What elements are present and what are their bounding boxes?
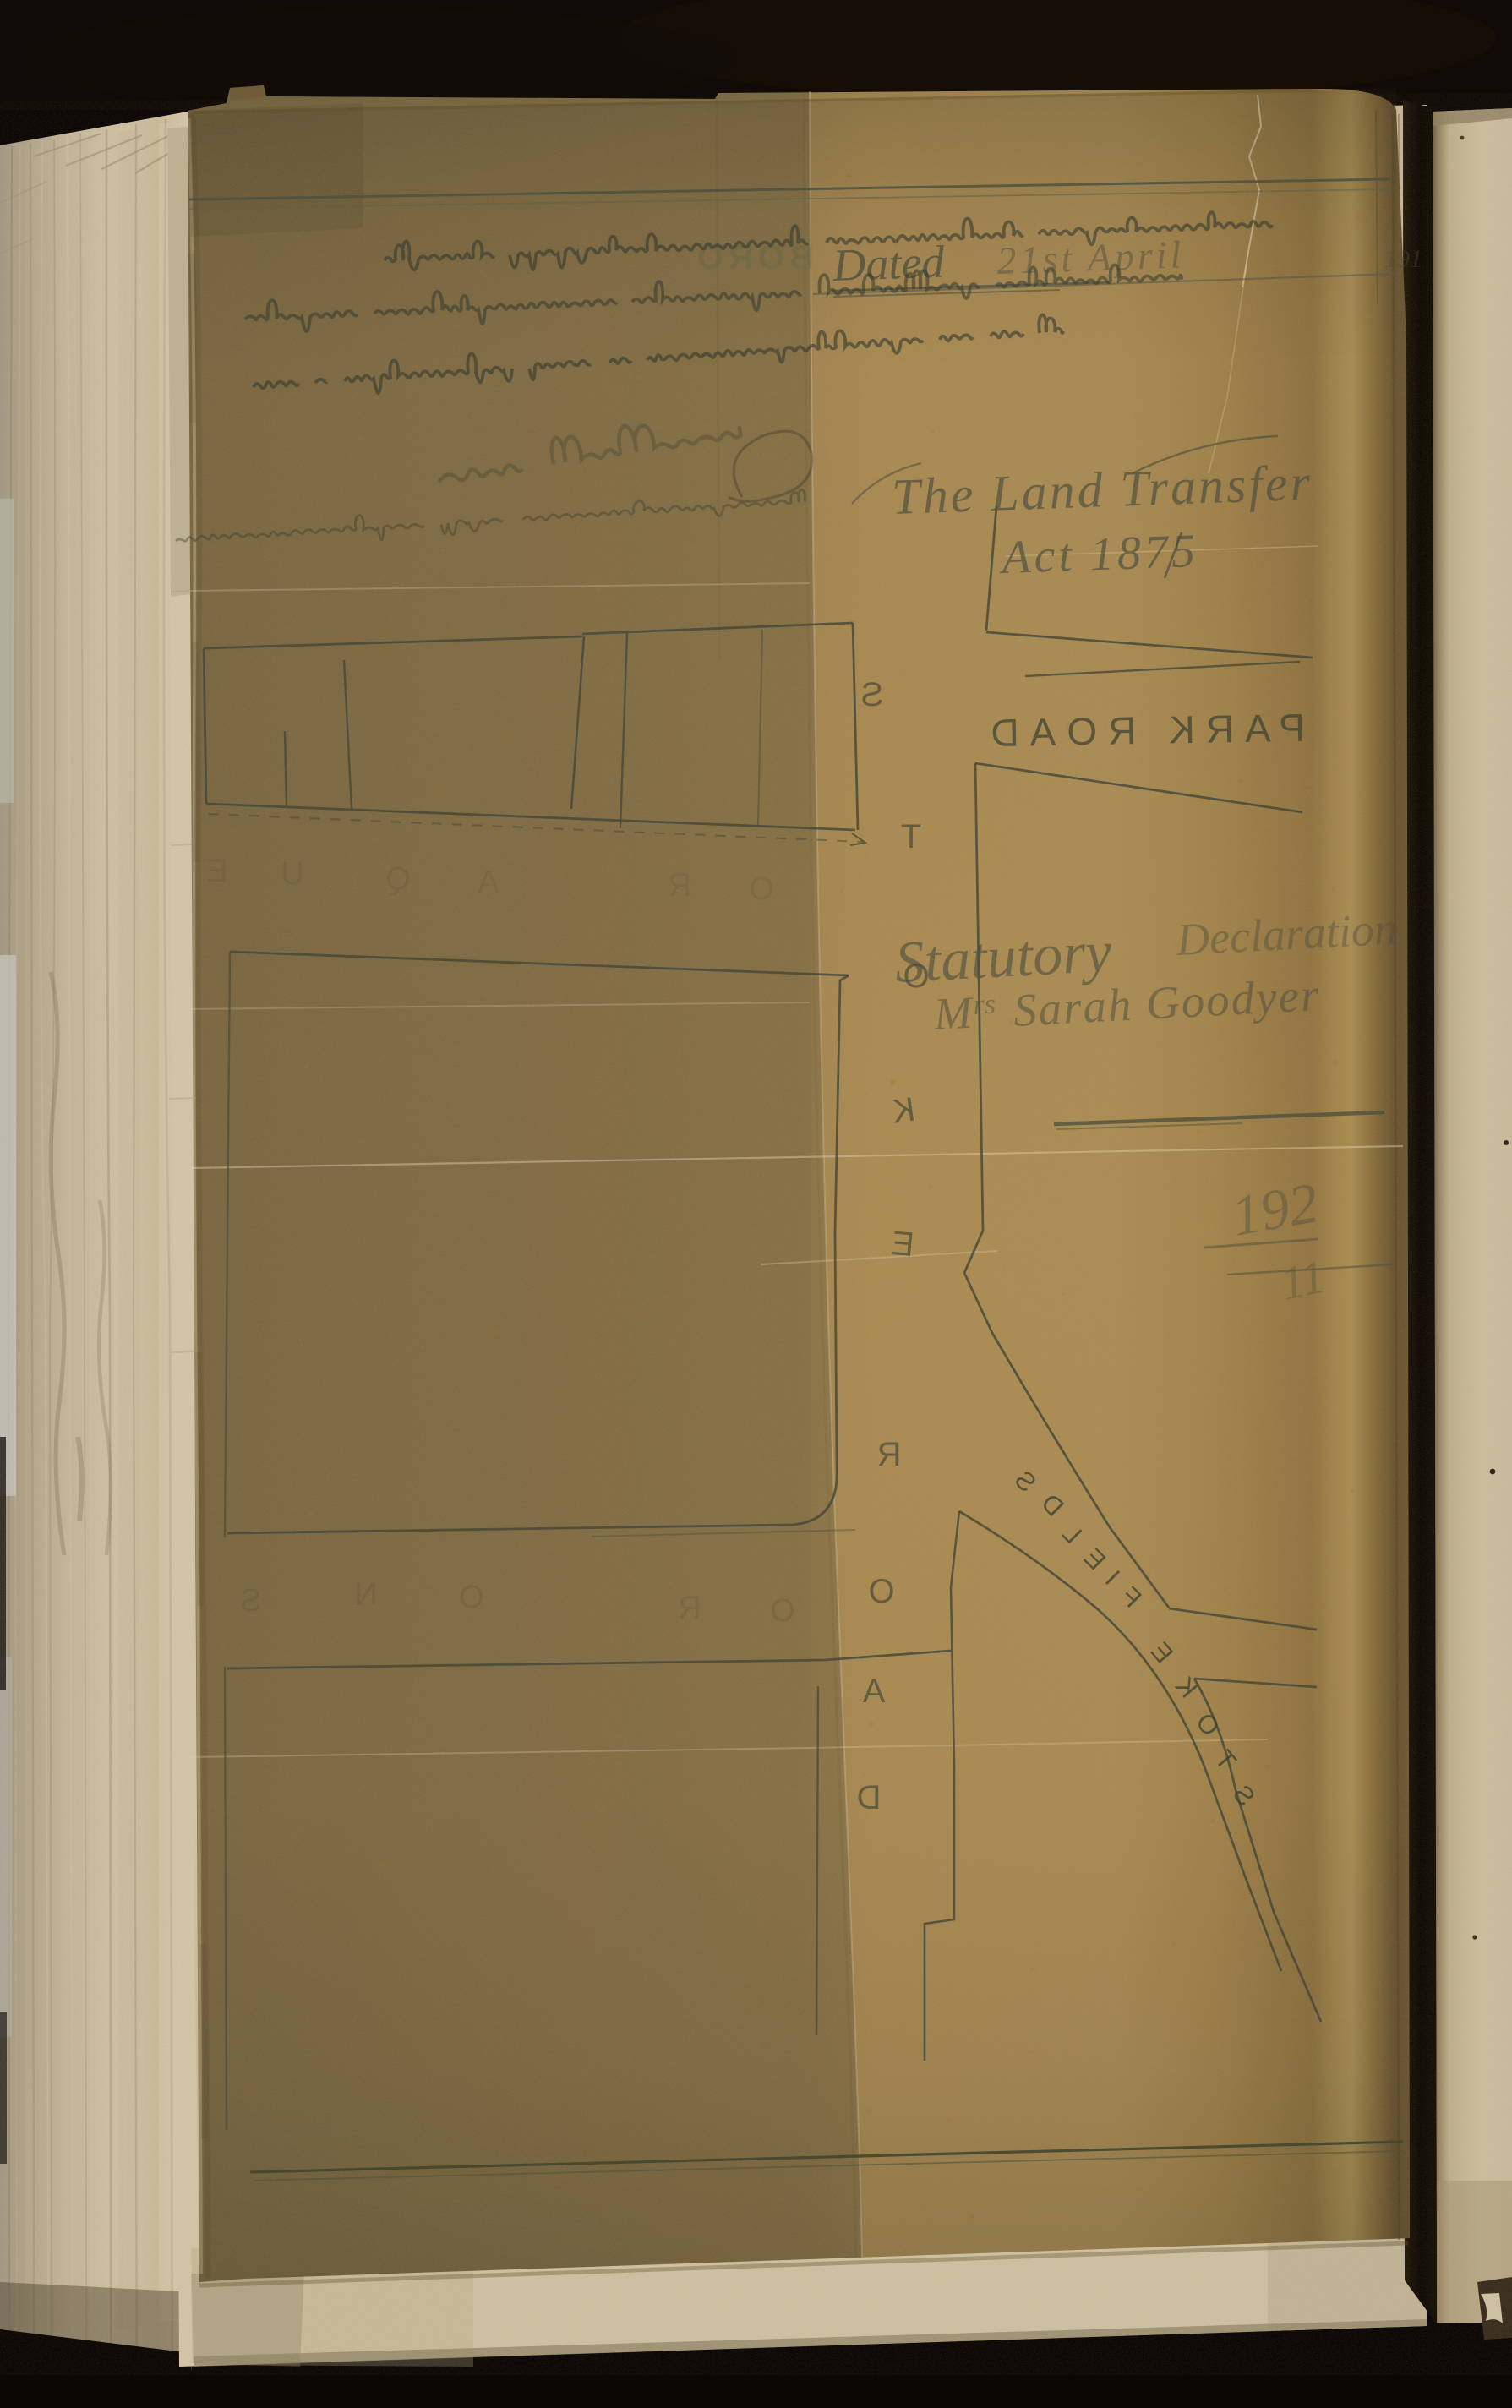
svg-text:191: 191 — [1384, 245, 1422, 273]
svg-text:Act 1875: Act 1875 — [997, 525, 1199, 584]
svg-text:A: A — [862, 1673, 885, 1710]
svg-text:T: T — [901, 818, 921, 855]
svg-text:PARK ROAD: PARK ROAD — [980, 706, 1305, 756]
svg-text:R: R — [668, 868, 690, 904]
svg-text:O: O — [459, 1580, 484, 1615]
svg-text:R: R — [678, 1591, 701, 1626]
svg-text:U: U — [281, 856, 303, 892]
svg-text:N: N — [354, 1577, 377, 1613]
svg-text:rs: rs — [972, 989, 996, 1021]
svg-text:O: O — [868, 1573, 894, 1610]
svg-text:A: A — [478, 865, 499, 900]
svg-text:S: S — [861, 676, 884, 713]
svg-text:O: O — [749, 871, 774, 907]
svg-text:S: S — [240, 1583, 261, 1619]
svg-text:Q: Q — [385, 861, 411, 897]
svg-text:R: R — [877, 1436, 902, 1473]
svg-text:E: E — [206, 854, 227, 889]
svg-text:D: D — [857, 1779, 882, 1816]
svg-text:M: M — [931, 987, 975, 1040]
svg-text:E: E — [890, 1225, 915, 1264]
svg-text:O: O — [770, 1593, 795, 1629]
